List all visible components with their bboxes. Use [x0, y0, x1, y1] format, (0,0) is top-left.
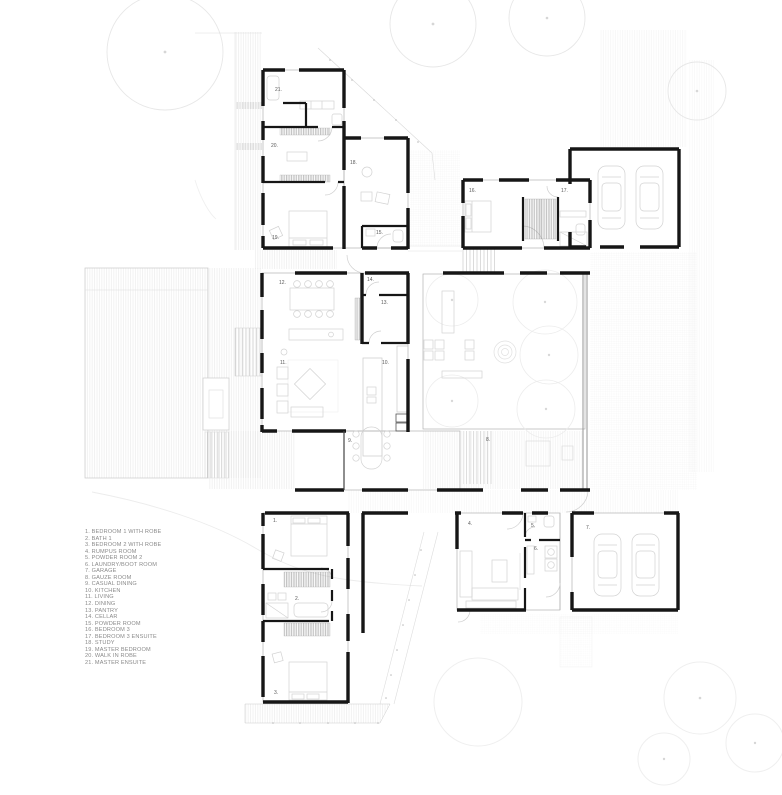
north-west-path — [195, 32, 262, 250]
entry-path-lines — [408, 246, 462, 251]
legend: 1. BEDROOM 1 WITH ROBE 2. BATH 1 3. BEDR… — [85, 529, 161, 666]
room-label-12: 12. — [279, 280, 286, 286]
site-trees-south — [434, 658, 782, 785]
tree-icon — [509, 0, 585, 56]
carport-cars — [598, 166, 663, 229]
tree-icon — [434, 658, 522, 746]
room-label-11: 11. — [280, 360, 287, 366]
walk-in-robe-joinery — [280, 128, 330, 182]
room-label-17: 17. — [561, 188, 568, 194]
gauze-south-deck — [423, 431, 583, 489]
south-walkway — [348, 490, 678, 513]
room-label-13: 13. — [381, 300, 388, 306]
master-ensuite-fixtures — [267, 76, 342, 125]
living-south-deck — [208, 431, 295, 489]
entry-steps-north — [462, 248, 497, 272]
room-label-8: 8. — [486, 437, 490, 443]
room-label-19: 19. — [272, 235, 279, 241]
room-label-2: 2. — [295, 596, 299, 602]
room-label-21: 21. — [275, 87, 282, 93]
tree-icon — [107, 0, 223, 110]
bottom-deck — [245, 704, 390, 724]
room-label-9: 9. — [348, 438, 352, 444]
boardwalk — [380, 532, 438, 704]
room-label-16: 16. — [469, 188, 476, 194]
room-label-14: 14. — [367, 277, 374, 283]
north-breezeway-deck — [255, 250, 337, 269]
room-label-18: 18. — [350, 160, 357, 166]
driveway-hatch-top — [600, 30, 687, 147]
room-label-5: 5. — [531, 523, 535, 529]
room-label-10: 10. — [382, 360, 389, 366]
legend-item: 1. BEDROOM 1 WITH ROBE — [85, 529, 161, 536]
spa-planter — [203, 378, 229, 430]
room-label-1: 1. — [273, 518, 277, 524]
garage-cars — [594, 534, 659, 596]
rumpus-furniture — [460, 551, 520, 608]
driveway-hatch-right — [688, 60, 714, 472]
room-label-4: 4. — [468, 521, 472, 527]
car-icon — [636, 166, 663, 229]
room-label-7: 7. — [586, 525, 590, 531]
floor-plan-sheet: 1. 2. 3. 4. 5. 6. 7. 8. 9. 10. 11. 12. 1… — [0, 0, 782, 795]
deck-steps-east — [235, 328, 262, 376]
casual-dining-table — [353, 427, 390, 469]
car-icon — [598, 166, 625, 229]
floor-plan-drawing: 1. 2. 3. 4. 5. 6. 7. 8. 9. 10. 11. 12. 1… — [0, 0, 782, 795]
legend-item: 21. MASTER ENSUITE — [85, 660, 161, 667]
gravel-courtyard-east — [590, 252, 697, 490]
room-label-3: 3. — [274, 690, 278, 696]
room-label-15: 15. — [376, 230, 383, 236]
tree-icon — [390, 0, 476, 67]
car-icon — [632, 534, 659, 596]
dining-table — [289, 281, 343, 340]
garden-bed-curve — [195, 180, 216, 219]
bedroom2-furniture — [272, 623, 330, 700]
legend-item: 3. BEDROOM 2 WITH ROBE — [85, 542, 161, 549]
room-label-20: 20. — [271, 143, 278, 149]
bedroom1-furniture — [273, 516, 330, 587]
path-south-of-garage — [480, 614, 678, 634]
gravel-courtyard-entry — [410, 150, 460, 246]
room-label-6: 6. — [534, 546, 538, 552]
master-bed — [269, 211, 327, 247]
study-furniture — [361, 167, 390, 204]
car-icon — [594, 534, 621, 596]
